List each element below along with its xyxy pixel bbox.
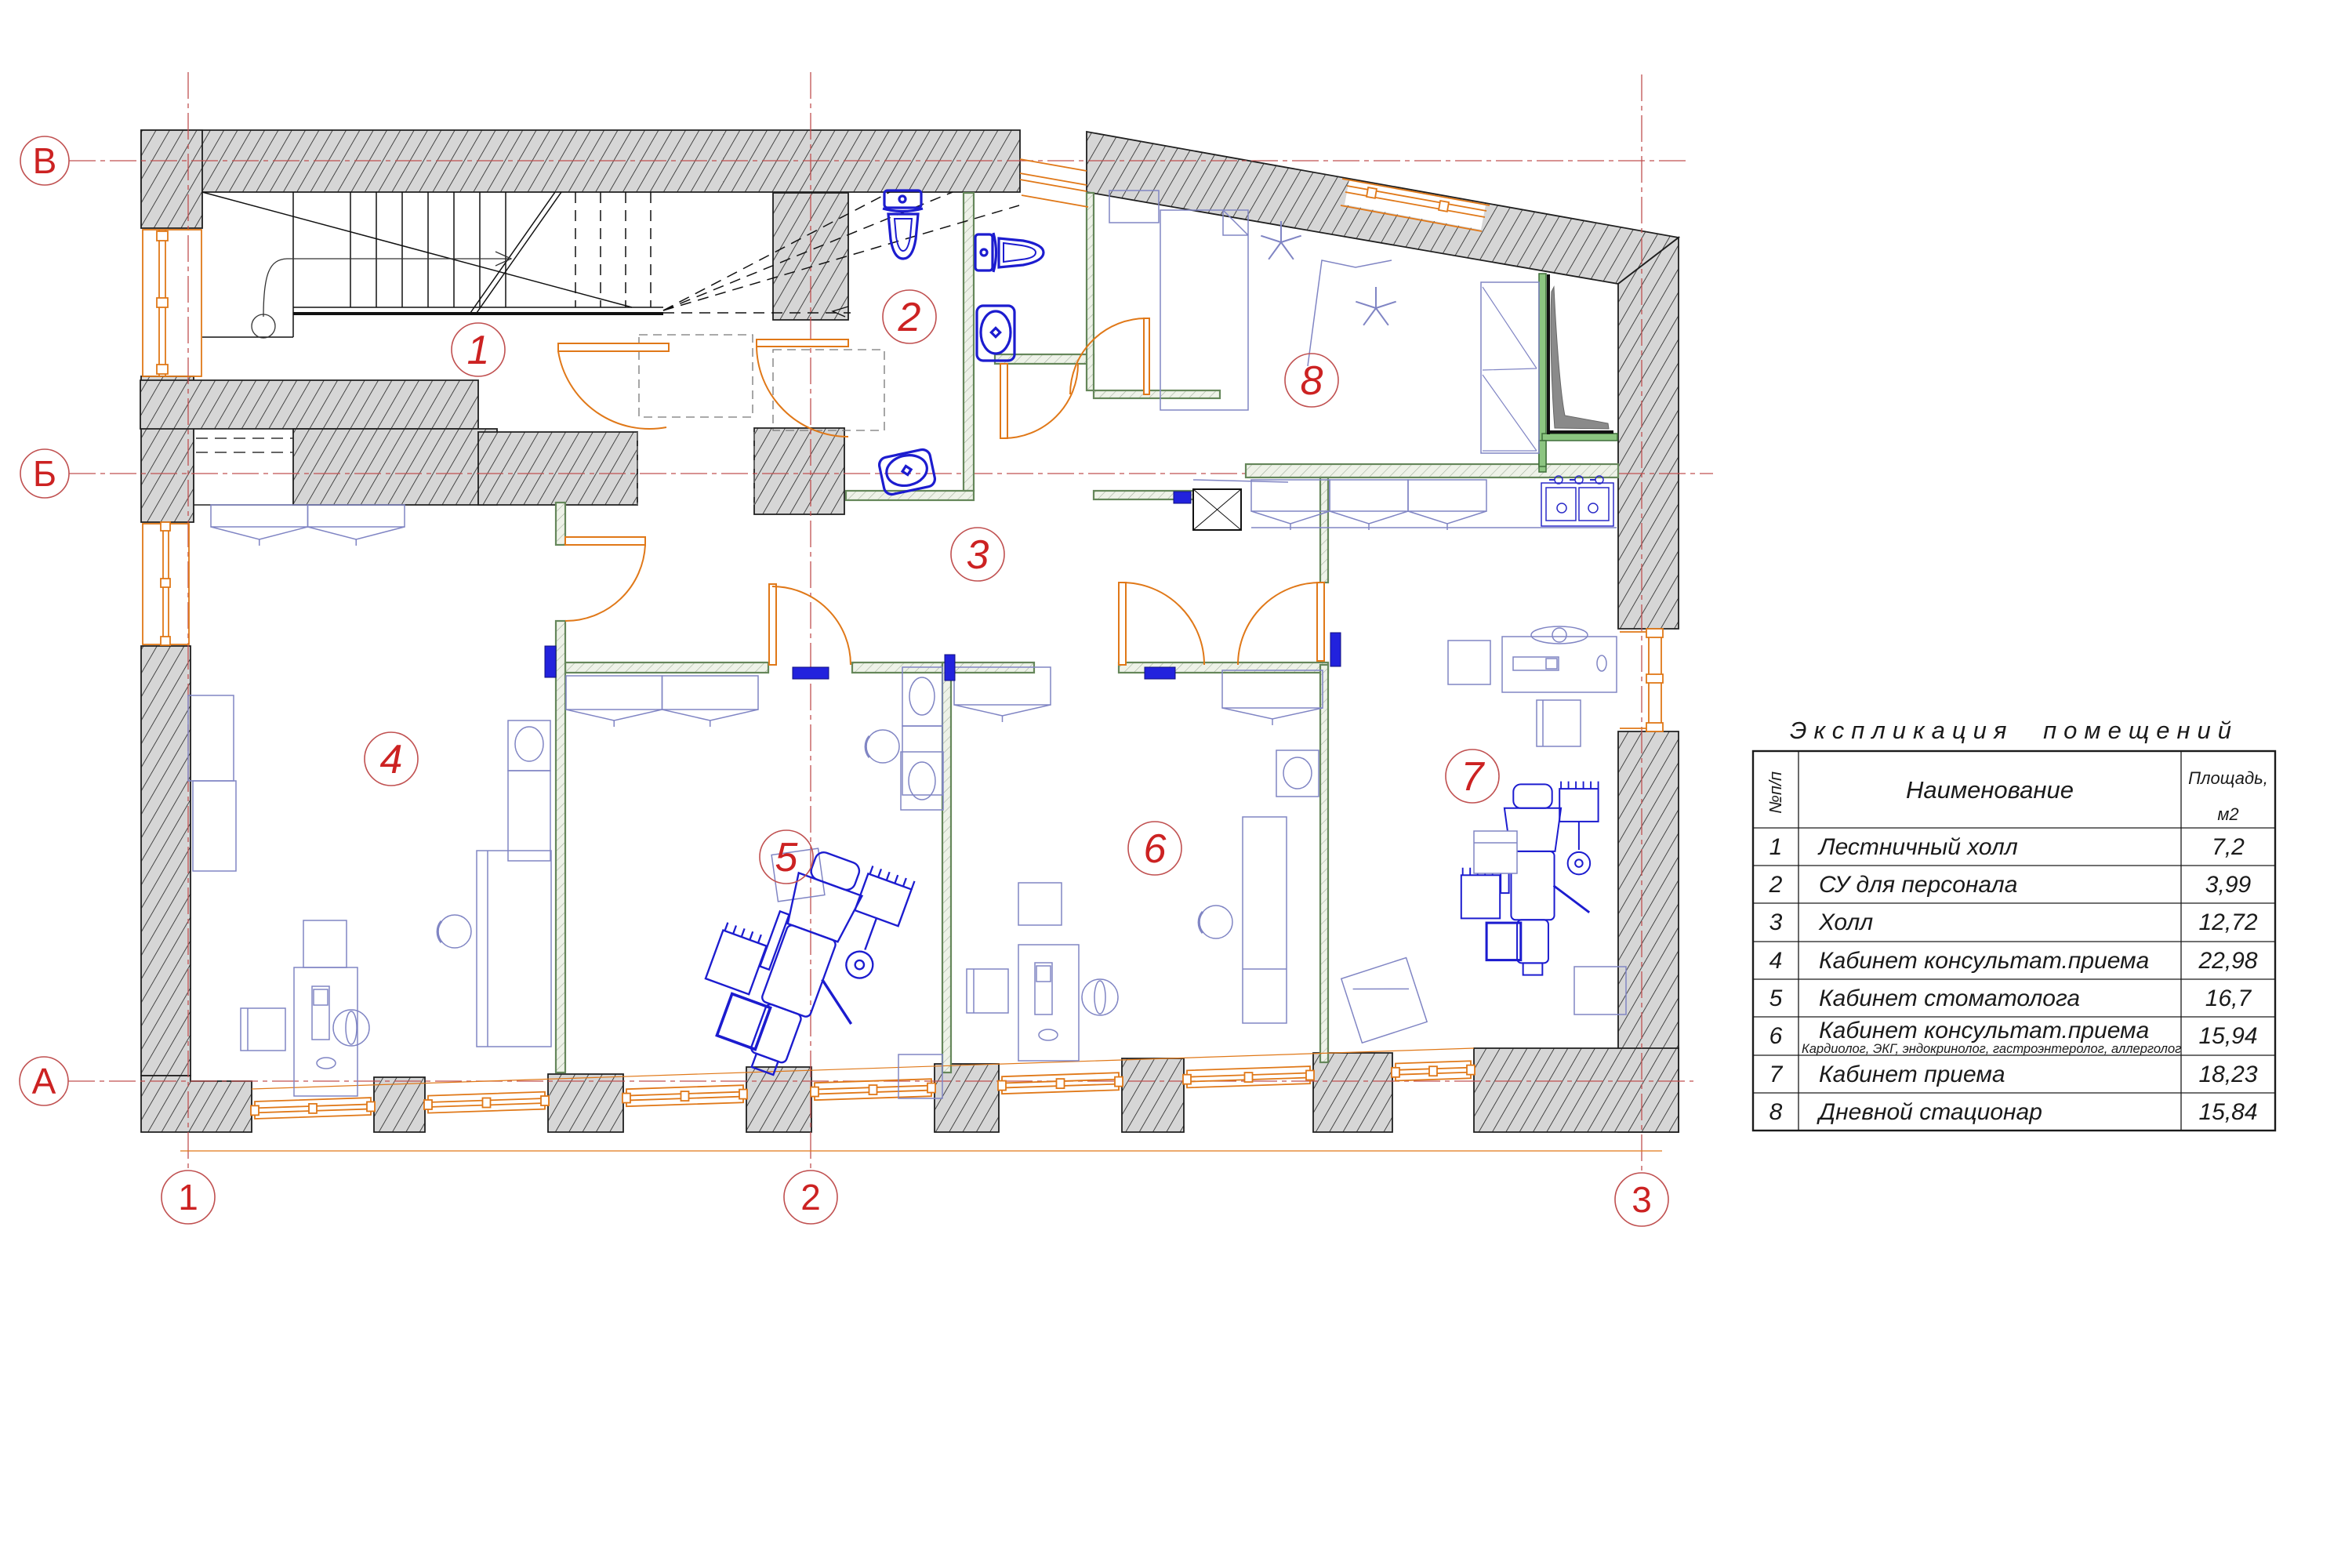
svg-text:6: 6 <box>1144 826 1167 872</box>
svg-text:15,84: 15,84 <box>2198 1099 2257 1125</box>
svg-text:Наименование: Наименование <box>1906 776 2074 804</box>
svg-text:5: 5 <box>775 835 799 880</box>
svg-text:4: 4 <box>1769 948 1783 974</box>
svg-text:2: 2 <box>898 295 921 340</box>
svg-text:2: 2 <box>800 1177 821 1218</box>
svg-text:1: 1 <box>467 328 490 373</box>
svg-text:22,98: 22,98 <box>2198 948 2257 974</box>
svg-text:18,23: 18,23 <box>2198 1062 2257 1087</box>
svg-text:Кабинет приема: Кабинет приема <box>1819 1062 2005 1087</box>
svg-text:3,99: 3,99 <box>2205 872 2252 898</box>
svg-text:Кабинет стоматолога: Кабинет стоматолога <box>1819 985 2080 1011</box>
svg-text:м2: м2 <box>2217 804 2238 824</box>
svg-text:Б: Б <box>33 453 56 494</box>
svg-text:Кабинет консультат.приема: Кабинет консультат.приема <box>1819 1018 2149 1044</box>
svg-text:Кабинет консультат.приема: Кабинет консультат.приема <box>1819 948 2149 974</box>
svg-text:6: 6 <box>1769 1023 1783 1049</box>
svg-text:Холл: Холл <box>1818 909 1873 935</box>
svg-text:7,2: 7,2 <box>2212 834 2245 860</box>
svg-text:3: 3 <box>1769 909 1783 935</box>
svg-text:16,7: 16,7 <box>2205 985 2252 1011</box>
svg-text:1: 1 <box>1769 834 1783 860</box>
svg-text:3: 3 <box>967 532 989 578</box>
svg-text:8: 8 <box>1301 358 1323 404</box>
svg-text:4: 4 <box>380 737 403 782</box>
svg-text:Лестничный холл: Лестничный холл <box>1817 834 2018 860</box>
svg-text:12,72: 12,72 <box>2198 909 2257 935</box>
svg-text:Кардиолог, ЭКГ, эндокринолог,: Кардиолог, ЭКГ, эндокринолог, гастроэнте… <box>1802 1042 2181 1056</box>
svg-text:7: 7 <box>1769 1062 1784 1087</box>
svg-text:2: 2 <box>1769 872 1783 898</box>
svg-text:8: 8 <box>1769 1099 1783 1125</box>
svg-text:№п/п: №п/п <box>1766 771 1785 814</box>
svg-text:В: В <box>33 140 57 181</box>
svg-text:5: 5 <box>1769 985 1783 1011</box>
svg-text:Дневной стационар: Дневной стационар <box>1817 1099 2042 1125</box>
svg-text:Площадь,: Площадь, <box>2188 768 2268 788</box>
svg-text:А: А <box>32 1061 56 1102</box>
svg-text:3: 3 <box>1632 1179 1652 1220</box>
svg-text:15,94: 15,94 <box>2198 1023 2257 1049</box>
svg-text:СУ для персонала: СУ для персонала <box>1819 872 2017 898</box>
svg-text:7: 7 <box>1461 754 1486 800</box>
svg-text:Экспликация помещений: Экспликация помещений <box>1790 717 2238 744</box>
svg-text:1: 1 <box>178 1177 198 1218</box>
